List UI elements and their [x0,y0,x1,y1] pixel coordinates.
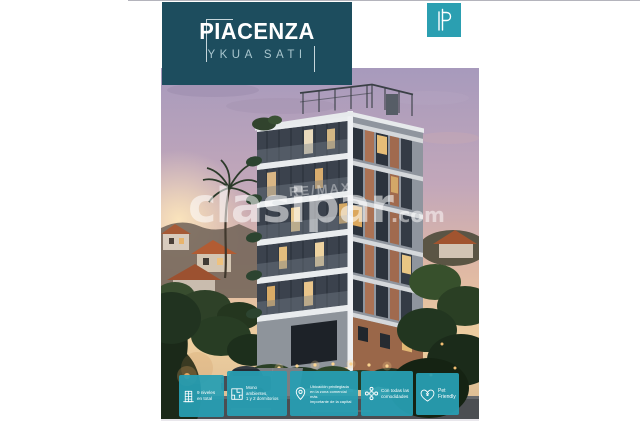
feature-text-line: Friendly [438,394,456,400]
feature-card-amenities: Con todas las comodidades [361,371,413,416]
floorplan-icon [230,387,244,401]
building-photo: RE/MAX [161,68,479,420]
amenities-icon [364,386,379,401]
pet-friendly-icon [419,386,436,403]
page-subtitle: YKUA SATI [162,49,352,61]
feature-card-levels: 9 niveles en total [179,375,224,417]
title-box: PIACENZA YKUA SATI [162,2,352,85]
location-pin-icon [293,386,308,401]
clasipar-logo [427,3,461,37]
ad-flyer: RE/MAX clasipar .com PIACENZA YKUA SATI [0,0,640,427]
photo-edge [161,419,479,421]
feature-card-location: Ubicación privilegiada en la zona comerc… [290,371,358,416]
feature-text-line: 1 y 2 dormitorios [246,396,284,402]
feature-text-line: en la zona comercial más [310,389,355,399]
feature-text-line: importante de la capital [310,399,355,404]
feature-card-pet-friendly: Pet Friendly [416,373,459,415]
page-title: PIACENZA [167,18,348,45]
building-levels-icon [182,390,195,403]
clasipar-p-icon [427,3,461,37]
feature-text-line: en total [197,396,221,402]
feature-text-line: comodidades [381,394,410,400]
top-divider [128,0,640,1]
feature-card-units: Mono ambientes, 1 y 2 dormitorios [227,371,287,416]
building-render-illustration [161,68,479,420]
